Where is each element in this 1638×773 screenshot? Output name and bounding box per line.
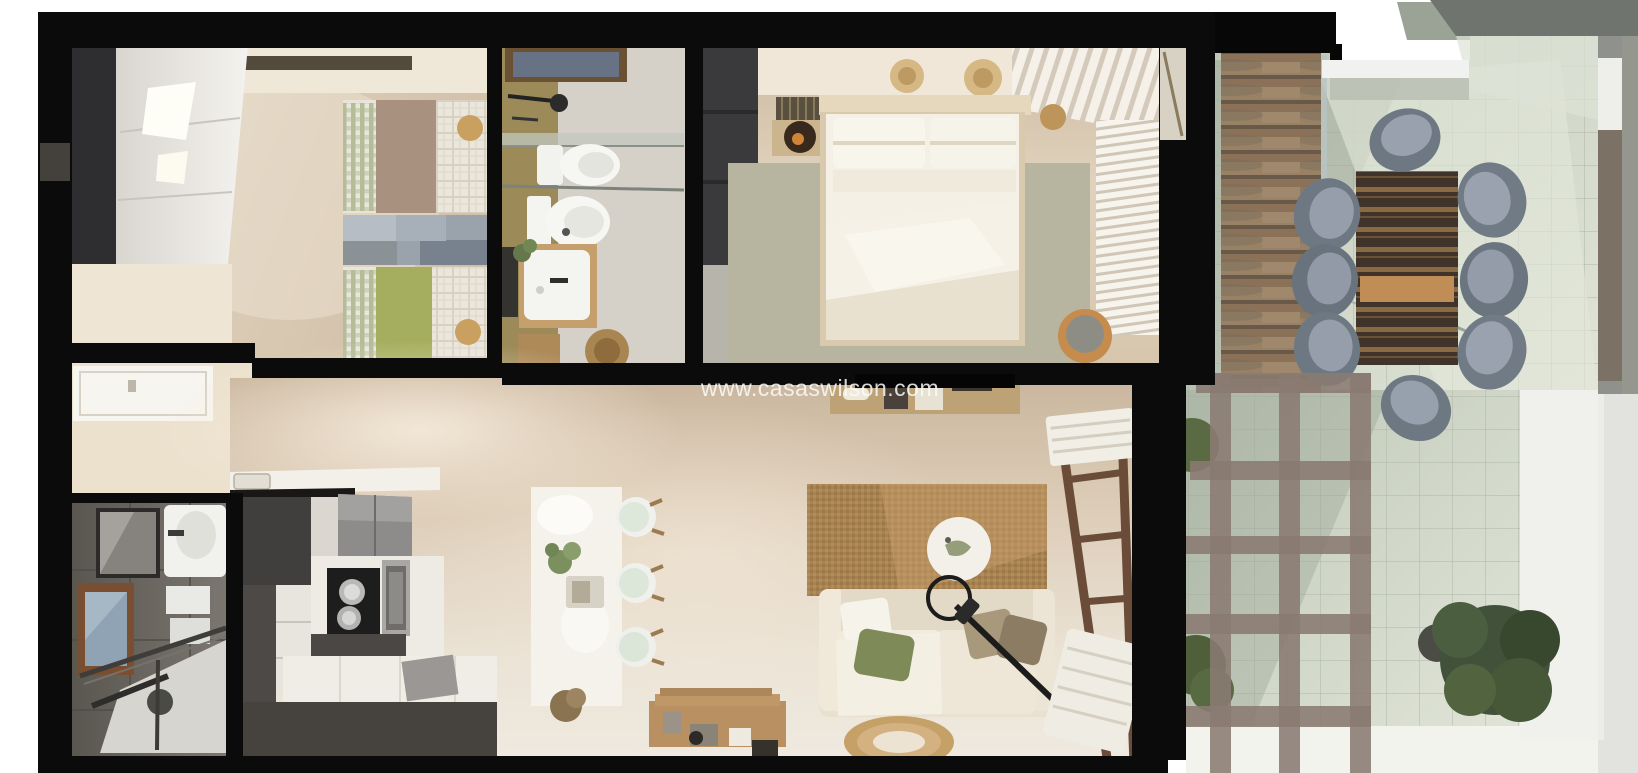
svg-text:www.casaswilson.com: www.casaswilson.com bbox=[700, 375, 939, 401]
